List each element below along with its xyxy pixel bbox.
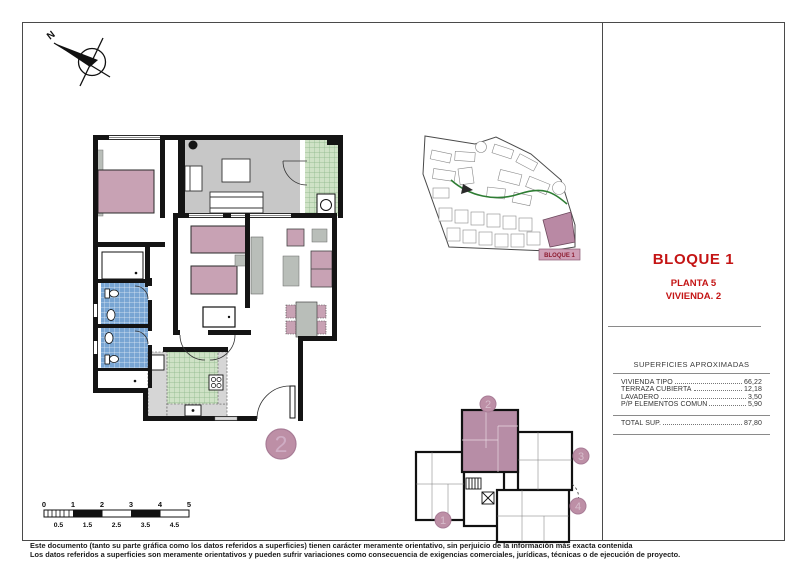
surface-value: 12,18 — [744, 386, 762, 393]
disclaimer-line2: Los datos referidos a superficies son me… — [30, 550, 780, 559]
surface-row: LAVADERO3,50 — [621, 394, 762, 401]
floor-plan: 2 — [85, 128, 347, 460]
scale-half-label: 2.5 — [112, 522, 122, 529]
scale-tick-label: 1 — [71, 500, 75, 509]
site-block-label: BLOQUE 1 — [539, 249, 580, 260]
dwelling-title: VIVIENDA. 2 — [603, 290, 784, 303]
key-plan: 1 2 3 4 — [402, 392, 597, 550]
laundry-appliance — [317, 194, 335, 215]
unit2-badge: 2 — [485, 399, 491, 411]
surface-value: 66,22 — [744, 379, 762, 386]
scale-tick-label: 2 — [100, 500, 104, 509]
unit3-badge: 3 — [578, 451, 584, 463]
surface-row: P/P ELEMENTOS COMUN5,90 — [621, 401, 762, 408]
bedroom2-furniture — [191, 226, 263, 327]
surface-value: 3,50 — [748, 394, 762, 401]
panel-divider — [613, 373, 770, 374]
disclaimer-line1: Este documento (tanto su parte gráfica c… — [30, 541, 780, 550]
surface-value: 5,90 — [748, 401, 762, 408]
panel-divider — [613, 434, 770, 435]
scale-bar-segments — [44, 510, 189, 517]
plan-sheet: BLOQUE 1 PLANTA 5 VIVIENDA. 2 SUPERFICIE… — [0, 0, 800, 563]
surface-label: TERRAZA CUBIERTA — [621, 386, 692, 393]
disclaimer: Este documento (tanto su parte gráfica c… — [30, 541, 780, 560]
scale-half-label: 3.5 — [141, 522, 151, 529]
surfaces-header: SUPERFICIES APROXIMADAS — [613, 360, 770, 369]
scale-half-label: 0.5 — [54, 522, 64, 529]
surface-row: TERRAZA CUBIERTA12,18 — [621, 386, 762, 393]
unit1-badge: 1 — [440, 515, 446, 527]
key-plan-unit2-highlight — [462, 410, 518, 472]
scale-tick-label: 4 — [158, 500, 163, 509]
unit4-badge: 4 — [575, 501, 581, 513]
unit-marker: 2 — [266, 429, 296, 459]
unit-marker-number: 2 — [275, 431, 288, 457]
total-label: TOTAL SUP. — [621, 420, 661, 427]
site-block-label-text: BLOQUE 1 — [544, 253, 575, 259]
total-row: TOTAL SUP.87,80 — [621, 420, 762, 427]
surfaces-table: VIVIENDA TIPO66,22 TERRAZA CUBIERTA12,18… — [621, 379, 762, 408]
title-block: BLOQUE 1 PLANTA 5 VIVIENDA. 2 — [603, 251, 784, 304]
scale-tick-label: 3 — [129, 500, 133, 509]
panel-divider — [613, 415, 770, 416]
floor-title: PLANTA 5 — [603, 277, 784, 290]
compass-north-icon: N — [40, 26, 130, 92]
scale-tick-label: 5 — [187, 500, 191, 509]
site-plan: BLOQUE 1 — [403, 130, 593, 270]
living-room-furniture — [283, 229, 332, 287]
block-title: BLOQUE 1 — [603, 251, 784, 268]
surface-label: LAVADERO — [621, 394, 659, 401]
surface-label: P/P ELEMENTOS COMUN — [621, 401, 707, 408]
panel-divider — [608, 326, 761, 327]
surface-row: VIVIENDA TIPO66,22 — [621, 379, 762, 386]
scale-bar: 0 1 2 3 4 5 0.5 1.5 2.5 3.5 4.5 — [36, 497, 204, 531]
compass-n-label: N — [45, 29, 57, 42]
scale-tick-label: 0 — [42, 500, 46, 509]
total-value: 87,80 — [744, 420, 762, 427]
scale-half-label: 4.5 — [170, 522, 180, 529]
bedroom1-furniture — [96, 150, 154, 216]
dining-set — [286, 302, 326, 337]
scale-half-label: 1.5 — [83, 522, 93, 529]
surface-label: VIVIENDA TIPO — [621, 379, 673, 386]
info-panel: BLOQUE 1 PLANTA 5 VIVIENDA. 2 SUPERFICIE… — [602, 22, 785, 541]
